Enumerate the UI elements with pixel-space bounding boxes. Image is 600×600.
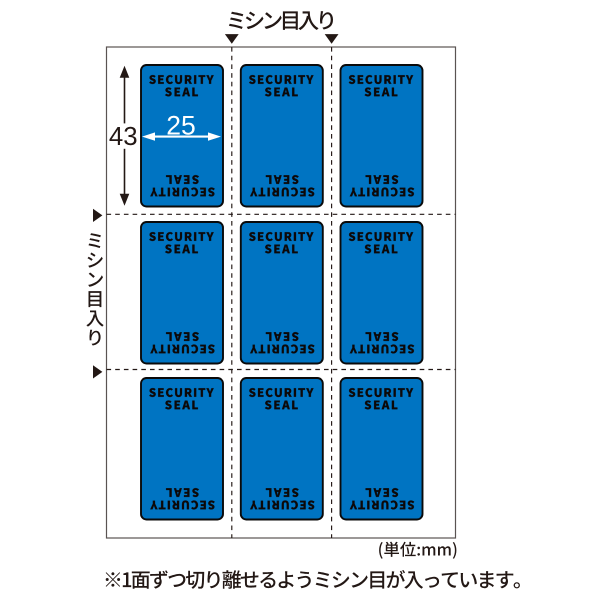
svg-text:25: 25	[166, 110, 195, 140]
svg-text:43: 43	[109, 123, 138, 151]
